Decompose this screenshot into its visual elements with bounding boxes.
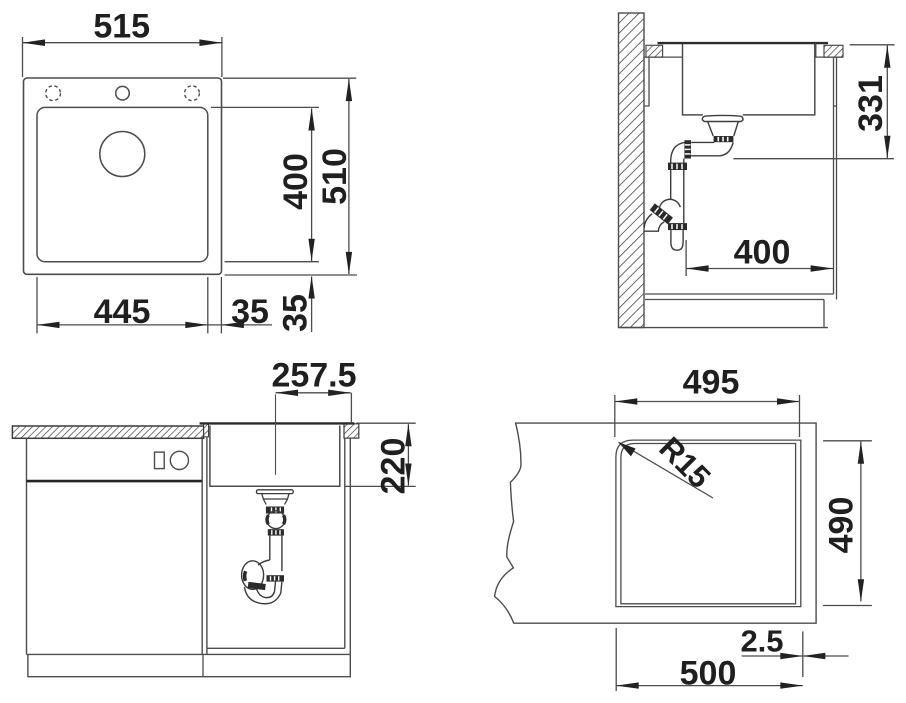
svg-text:331: 331 bbox=[852, 75, 890, 132]
svg-text:515: 515 bbox=[93, 8, 150, 46]
svg-text:510: 510 bbox=[316, 148, 354, 205]
svg-text:35: 35 bbox=[277, 294, 315, 332]
svg-text:495: 495 bbox=[683, 364, 740, 402]
svg-text:257.5: 257.5 bbox=[271, 357, 356, 395]
svg-text:500: 500 bbox=[680, 655, 737, 693]
svg-text:445: 445 bbox=[94, 293, 151, 331]
svg-text:2.5: 2.5 bbox=[740, 624, 783, 659]
svg-text:400: 400 bbox=[277, 153, 315, 210]
svg-text:490: 490 bbox=[823, 497, 861, 554]
svg-text:400: 400 bbox=[734, 234, 791, 272]
svg-text:35: 35 bbox=[231, 293, 269, 331]
svg-text:220: 220 bbox=[375, 438, 413, 495]
